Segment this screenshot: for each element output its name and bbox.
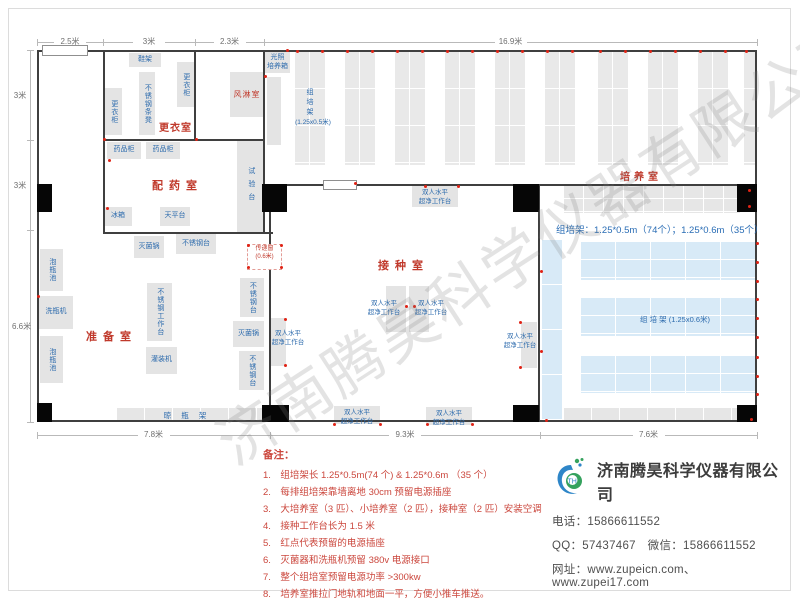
wall [103,232,273,234]
power-outlet-dot [371,50,374,53]
equipment-block: 泡瓶池 [40,336,63,383]
pass-window: 传递窗 (0.6米) [247,244,282,270]
equipment-block: 不锈钢台 [240,278,264,317]
power-outlet-dot [540,350,543,353]
equipment-block: 不锈钢工作台 [147,283,172,341]
tissue-culture-rack-horizontal [564,186,740,213]
power-outlet-dot [756,298,759,301]
equipment-block: 风淋室 [230,72,264,117]
power-outlet-dot [599,50,602,53]
power-outlet-dot [649,50,652,53]
power-outlet-dot [457,185,460,188]
power-outlet-dot [106,207,109,210]
power-outlet-dot [750,418,753,421]
dimension-label: 7.8米 [138,429,170,440]
equipment-block: 冰箱 [104,207,132,226]
door [42,45,88,56]
clean-bench-label: 双人水平 超净工作台 [498,333,542,351]
dimension-tick [37,39,38,46]
dimension-tick [195,39,196,46]
note-item: 6. 灭菌器和洗瓶机预留 380v 电源接口 [263,552,563,569]
notes-section: 备注： 1. 组培架长 1.25*0.5m(74 个) & 1.25*0.6m … [263,447,563,600]
wall [269,184,271,422]
power-outlet-dot [756,393,759,396]
equipment-block: 灭菌锅 [233,321,264,347]
power-outlet-dot [748,189,751,192]
power-outlet-dot [540,270,543,273]
note-item: 3. 大培养室（3 匹）、小培养室（2 匹），接种室（2 匹）安装空调 [263,501,563,518]
company-contact-line: QQ：57437467 微信：15866611552 [552,537,792,553]
dimension-tick [103,39,104,46]
tissue-culture-rack-vertical [698,52,728,165]
room-label: 培养室 [620,168,662,183]
power-outlet-dot [247,266,250,269]
dimension-label: 2.3米 [214,36,246,47]
power-outlet-dot [195,138,198,141]
power-outlet-dot [405,305,408,308]
equipment-block: 灭菌锅 [134,236,164,258]
power-outlet-dot [424,185,427,188]
svg-text:TH: TH [568,479,577,486]
floor-plan-canvas: 鞋架更衣柜不锈钢条凳更衣柜风淋室光照 培养箱药品柜药品柜试验台冰箱天平台灭菌锅不… [0,0,800,600]
power-outlet-dot [426,423,429,426]
power-outlet-dot [545,419,548,422]
power-outlet-dot [247,244,250,247]
power-outlet-dot [724,50,727,53]
note-item: 1. 组培架长 1.25*0.5m(74 个) & 1.25*0.6m （35 … [263,467,563,484]
clean-bench-label: 双人水平 超净工作台 [335,409,379,427]
power-outlet-dot [471,423,474,426]
notes-title: 备注： [263,447,563,462]
door [323,180,357,190]
tissue-culture-rack-vertical [545,52,575,165]
structural-column [262,405,289,422]
tissue-culture-rack-blue [581,242,755,280]
tissue-culture-rack-vertical [495,52,525,165]
power-outlet-dot [756,317,759,320]
dimension-tick [27,230,34,231]
power-outlet-dot [756,375,759,378]
power-outlet-dot [519,321,522,324]
power-outlet-dot [264,75,267,78]
dimension-line [30,50,31,422]
power-outlet-dot [571,50,574,53]
wall [103,50,105,234]
power-outlet-dot [280,244,283,247]
power-outlet-dot [379,423,382,426]
clean-bench-label: 双人水平 超净工作台 [409,300,453,318]
tissue-culture-rack-blue-vertical [542,240,562,422]
note-item: 5. 红点代表预留的电源插座 [263,535,563,552]
tissue-culture-rack-vertical [445,52,475,165]
note-item: 7. 整个组培室预留电源功率 >300kw [263,569,563,586]
rack-spec-label: (1.25x0.5米) [293,116,333,126]
power-outlet-dot [333,423,336,426]
dimension-tick [27,422,34,423]
equipment-block: 光照 培养箱 [265,52,290,73]
structural-column [737,184,757,212]
equipment-block-unlabeled [267,77,281,145]
structural-column [737,405,757,422]
equipment-block: 不锈钢台 [176,234,216,254]
dimension-label: 6.6米 [12,321,28,332]
power-outlet-dot [37,295,40,298]
company-contact-line: 网址：www.zupeicn.com、www.zupei17.com [552,561,792,589]
power-outlet-dot [756,280,759,283]
power-outlet-dot [286,49,289,52]
clean-bench-label: 双人水平 超净工作台 [427,410,471,428]
tissue-culture-rack-blue [581,356,755,393]
power-outlet-dot [321,50,324,53]
clean-bench-label: 双人水平 超净工作台 [266,330,310,348]
tissue-culture-rack-vertical [598,52,628,165]
company-contact-line: 电话：15866611552 [552,513,792,529]
note-item: 2. 每排组培架靠墙离地 30cm 预留电源插座 [263,484,563,501]
dimension-label: 3米 [12,180,28,191]
dimension-tick [757,39,758,46]
dimension-tick [27,140,34,141]
note-item: 8. 培养室推拉门地轨和地面一平，方便小推车推送。 [263,586,563,600]
equipment-block: 药品柜 [146,142,180,159]
power-outlet-dot [103,138,106,141]
dimension-label: 7.6米 [633,429,665,440]
power-outlet-dot [745,50,748,53]
equipment-block: 更衣柜 [177,62,194,107]
note-item: 4. 接种工作台长为 1.5 米 [263,518,563,535]
structural-column [37,184,52,212]
equipment-block: 灌装机 [146,347,177,374]
company-name: 济南腾昊科学仪器有限公司 [597,457,792,505]
room-label: 接种室 [378,257,429,273]
structural-column [262,184,287,212]
wall [37,420,757,422]
dimension-tick [37,432,38,439]
equipment-block: 药品柜 [107,142,141,159]
dimension-label: 3米 [133,36,165,47]
blue-rack-label: 组 培 架 (1.25x0.6米) [640,314,710,325]
power-outlet-dot [546,50,549,53]
wall [103,139,265,141]
power-outlet-dot [471,50,474,53]
power-outlet-dot [280,266,283,269]
room-label: 更衣室 [159,119,192,134]
dimension-label: 16.9米 [495,36,527,47]
power-outlet-dot [354,182,357,185]
company-logo-icon: TH [552,456,590,505]
structural-column [513,405,539,422]
power-outlet-dot [496,50,499,53]
power-outlet-dot [624,50,627,53]
power-outlet-dot [756,261,759,264]
company-contact-lines: 电话：15866611552QQ：57437467 微信：15866611552… [552,513,792,589]
power-outlet-dot [756,356,759,359]
equipment-block: 不锈钢条凳 [139,72,155,135]
room-label: 准备室 [86,328,137,344]
dimension-tick [27,50,34,51]
wall [37,50,39,422]
power-outlet-dot [521,50,524,53]
dimension-tick [264,39,265,46]
wall [755,50,757,422]
rack-label: 组培架 [304,88,314,118]
clean-bench-label: 双人水平 超净工作台 [413,189,457,207]
power-outlet-dot [699,50,702,53]
power-outlet-dot [396,50,399,53]
room-label: 配药室 [152,177,203,193]
tissue-culture-rack-vertical [345,52,375,165]
power-outlet-dot [446,50,449,53]
power-outlet-dot [674,50,677,53]
power-outlet-dot [284,318,287,321]
equipment-block: 试验台 [237,141,264,232]
equipment-block: 泡瓶池 [40,249,63,291]
dimension-label: 3米 [12,90,28,101]
power-outlet-dot [748,205,751,208]
company-header: TH 济南腾昊科学仪器有限公司 [552,456,792,505]
equipment-block: 更衣柜 [105,88,122,135]
structural-column [37,403,52,422]
structural-column [513,184,539,212]
power-outlet-dot [413,305,416,308]
power-outlet-dot [519,366,522,369]
equipment-block: 鞋架 [129,53,161,67]
power-outlet-dot [108,159,111,162]
power-outlet-dot [296,50,299,53]
power-outlet-dot [756,336,759,339]
wall [538,184,540,422]
clean-bench-label: 双人水平 超净工作台 [362,300,406,318]
dimension-label: 9.3米 [389,429,421,440]
tissue-culture-rack-vertical [395,52,425,165]
dimension-tick [540,432,541,439]
equipment-block: 不锈钢台 [239,351,264,390]
power-outlet-dot [421,50,424,53]
dimension-tick [270,432,271,439]
power-outlet-dot [756,242,759,245]
dimension-tick [757,432,758,439]
company-section: TH 济南腾昊科学仪器有限公司 电话：15866611552QQ：5743746… [552,456,792,589]
notes-list: 1. 组培架长 1.25*0.5m(74 个) & 1.25*0.6m （35 … [263,467,563,600]
equipment-block: 天平台 [160,207,190,226]
wall [194,50,196,141]
tissue-culture-rack-vertical [648,52,678,165]
equipment-block: 洗瓶机 [39,296,73,329]
rack-summary-label: 组培架：1.25*0.5m（74个）；1.25*0.6m（35个） [556,222,764,236]
power-outlet-dot [346,50,349,53]
power-outlet-dot [284,364,287,367]
